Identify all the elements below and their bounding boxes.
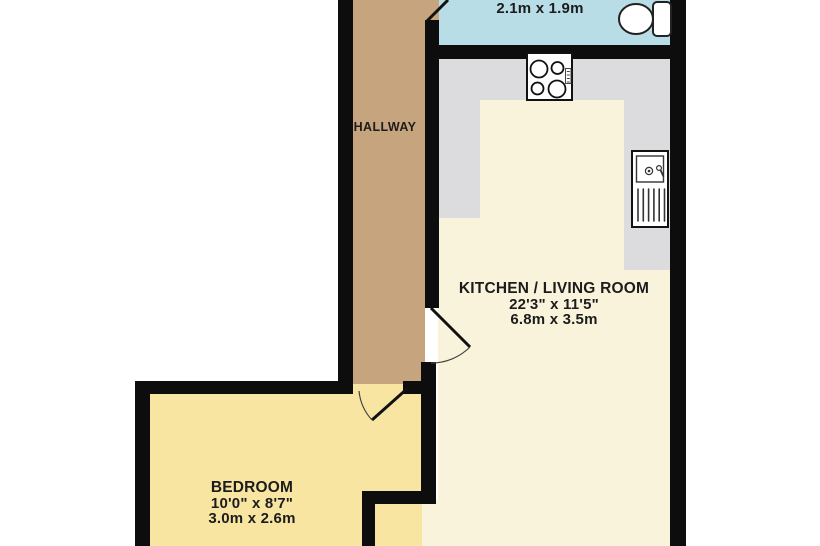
floor-plan: 2.1m x 1.9m HALLWAY KITCHEN / LIVING ROO… [0,0,820,546]
bedroom-label-block: BEDROOM 10'0" x 8'7" 3.0m x 2.6m [152,480,352,527]
kitchen-living-name: KITCHEN / LIVING ROOM [424,281,684,297]
bedroom-door-icon [359,387,409,420]
fixtures-layer [0,0,820,546]
bedroom-dims-imperial: 10'0" x 8'7" [152,496,352,512]
hallway-label: HALLWAY [345,121,425,134]
bedroom-name: BEDROOM [152,480,352,496]
kitchen-living-dims-metric: 6.8m x 3.5m [424,312,684,328]
bedroom-dims-metric: 3.0m x 2.6m [152,511,352,527]
kitchen-living-dims-imperial: 22'3" x 11'5" [424,297,684,313]
bathroom-dims-label: 2.1m x 1.9m [440,1,640,17]
kitchen-living-label-block: KITCHEN / LIVING ROOM 22'3" x 11'5" 6.8m… [424,281,684,328]
sink-drainer-icon [632,151,668,227]
hob-4-burner-icon [527,53,572,100]
